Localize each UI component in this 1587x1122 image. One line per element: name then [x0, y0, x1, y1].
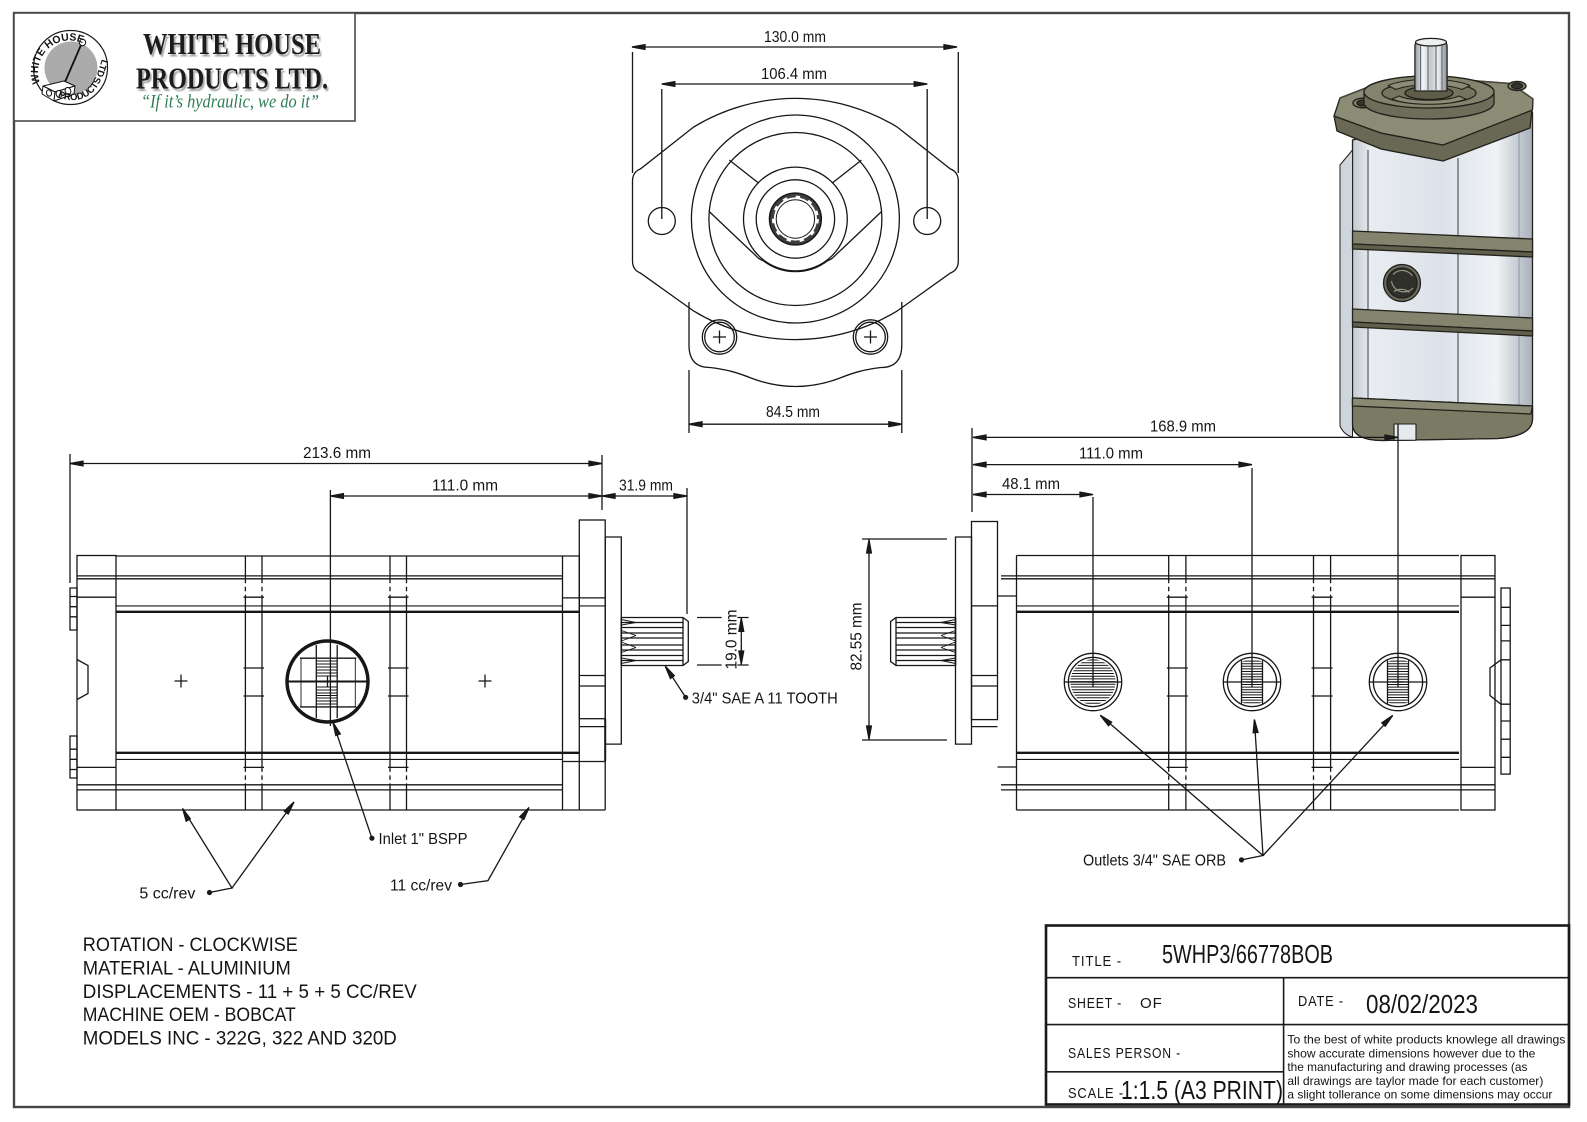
svg-text:106.4 mm: 106.4 mm	[761, 66, 827, 83]
svg-text:Inlet 1" BSPP: Inlet 1" BSPP	[379, 831, 468, 848]
svg-text:213.6 mm: 213.6 mm	[303, 445, 371, 462]
svg-text:To the best of white products: To the best of white products knowlege a…	[1287, 1033, 1565, 1047]
svg-text:SCALE -: SCALE -	[1068, 1085, 1124, 1102]
svg-text:SALES PERSON -: SALES PERSON -	[1068, 1045, 1181, 1062]
svg-text:5WHP3/66778BOB: 5WHP3/66778BOB	[1162, 939, 1333, 969]
svg-text:MODELS INC - 322G, 322 AND 320: MODELS INC - 322G, 322 AND 320D	[83, 1029, 397, 1050]
svg-text:130.0 mm: 130.0 mm	[764, 29, 826, 46]
svg-text:MACHINE OEM - BOBCAT: MACHINE OEM - BOBCAT	[83, 1005, 296, 1026]
svg-text:“If it’s hydraulic, we do it”: “If it’s hydraulic, we do it”	[141, 92, 319, 113]
svg-text:a slight tollerance on some di: a slight tollerance on some dimensions m…	[1287, 1088, 1552, 1102]
svg-text:3/4" SAE A 11 TOOTH: 3/4" SAE A 11 TOOTH	[692, 690, 838, 707]
svg-text:Outlets 3/4" SAE ORB: Outlets 3/4" SAE ORB	[1083, 853, 1226, 870]
svg-text:DATE -: DATE -	[1298, 993, 1344, 1010]
svg-text:111.0 mm: 111.0 mm	[1079, 446, 1143, 463]
svg-text:the manufacturing and drawing: the manufacturing and drawing processes …	[1287, 1060, 1527, 1074]
svg-text:08/02/2023: 08/02/2023	[1366, 989, 1478, 1019]
svg-text:111.0 mm: 111.0 mm	[432, 478, 498, 495]
svg-text:31.9 mm: 31.9 mm	[619, 478, 673, 495]
svg-text:WHITE HOUSE: WHITE HOUSE	[143, 26, 321, 61]
svg-text:all drawings are taylor made f: all drawings are taylor made for each cu…	[1287, 1074, 1543, 1088]
svg-text:ROTATION - CLOCKWISE: ROTATION - CLOCKWISE	[83, 935, 298, 956]
svg-text:1:1.5 (A3 PRINT): 1:1.5 (A3 PRINT)	[1121, 1075, 1283, 1105]
svg-text:11 cc/rev: 11 cc/rev	[390, 878, 452, 895]
svg-text:168.9 mm: 168.9 mm	[1150, 419, 1216, 436]
svg-text:19.0 mm: 19.0 mm	[724, 610, 741, 670]
svg-text:show accurate dimensions howev: show accurate dimensions however due to …	[1287, 1046, 1535, 1060]
svg-text:DISPLACEMENTS - 11 + 5 + 5 CC/: DISPLACEMENTS - 11 + 5 + 5 CC/REV	[83, 982, 417, 1003]
svg-text:OF: OF	[1140, 995, 1163, 1012]
svg-text:MATERIAL - ALUMINIUM: MATERIAL - ALUMINIUM	[83, 958, 291, 979]
svg-text:PRODUCTS LTD.: PRODUCTS LTD.	[136, 61, 328, 96]
svg-text:48.1 mm: 48.1 mm	[1002, 476, 1060, 493]
svg-text:TITLE -: TITLE -	[1072, 953, 1122, 970]
svg-text:84.5 mm: 84.5 mm	[766, 404, 820, 421]
svg-text:SHEET -: SHEET -	[1068, 995, 1122, 1012]
svg-text:82.55 mm: 82.55 mm	[849, 603, 866, 671]
svg-text:5 cc/rev: 5 cc/rev	[139, 886, 195, 903]
